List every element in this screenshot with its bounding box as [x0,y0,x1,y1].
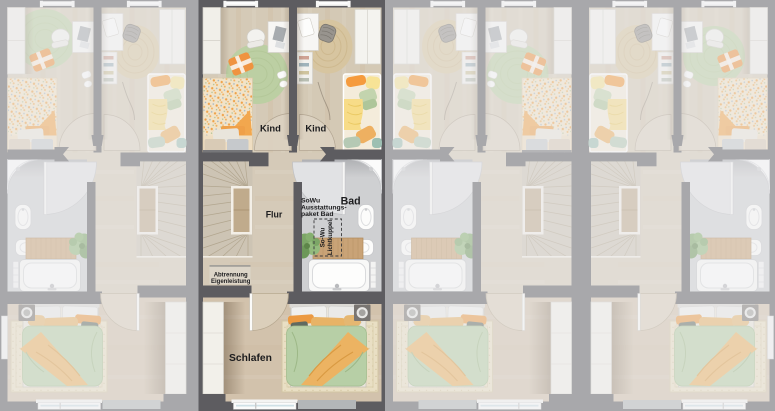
svg-text:paket Bad: paket Bad [301,211,333,218]
svg-text:Kind: Kind [305,123,326,134]
svg-text:Kind: Kind [260,123,281,134]
svg-text:Eigenleistung: Eigenleistung [211,279,251,285]
svg-text:So-Wu: So-Wu [320,227,327,247]
svg-text:Abtrennung: Abtrennung [214,272,248,278]
svg-text:Flur: Flur [266,210,283,220]
svg-text:Schlafen: Schlafen [229,353,272,364]
svg-text:Lichtkuppel: Lichtkuppel [327,220,334,256]
